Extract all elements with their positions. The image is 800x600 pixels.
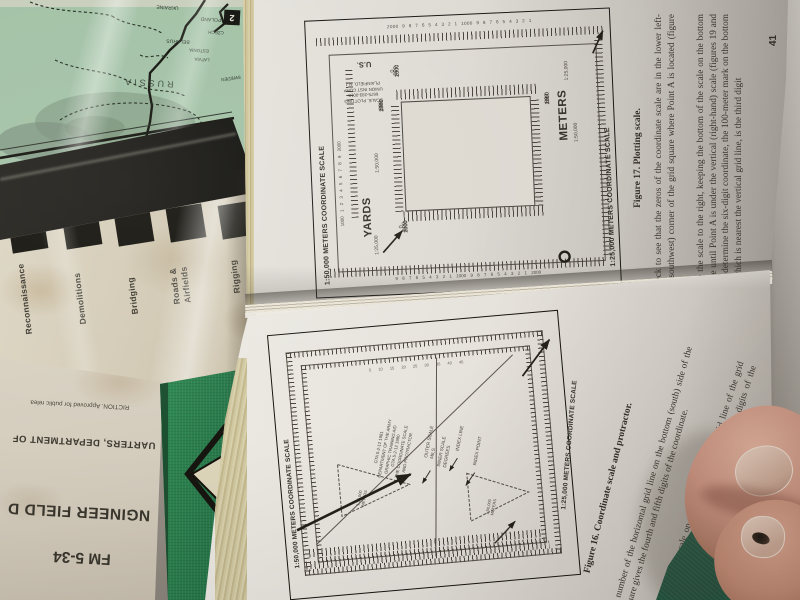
cover-title-line: NGINEER FIELD D — [0, 493, 168, 524]
figure-16-annotations — [268, 311, 582, 600]
cover-number: FM 5-34 — [26, 543, 139, 569]
cover-headquarters-line: UARTERS, DEPARTMENT OF — [0, 427, 175, 452]
cover-restriction-line: RICTION. Approved for public relea — [0, 389, 175, 413]
photo-scene: RUSSIA UKRAINE POLAND CZECH BELARUS ESTO… — [0, 0, 800, 600]
figure-17-annotations — [305, 8, 623, 299]
page-number: 41 — [768, 12, 779, 46]
figure-17-frame: 2000 9 8 7 6 5 4 3 2 1 1000 9 8 7 6 5 4 … — [304, 7, 622, 298]
paragraph-f: f. Slide the scale to the right, keeping… — [695, 14, 745, 302]
fm-5-34-cover: RICTION. Approved for public relea UARTE… — [0, 352, 175, 600]
figure-17-caption: Figure 17. Plotting scale. — [633, 14, 643, 302]
figure-16-frame: 5 10 15 20 25 30 35 40 45 GTA 5-2-12 198… — [267, 310, 581, 600]
nail-bruise — [751, 530, 772, 546]
paragraph-e: e. Check to see that the zeros of the co… — [653, 14, 691, 302]
